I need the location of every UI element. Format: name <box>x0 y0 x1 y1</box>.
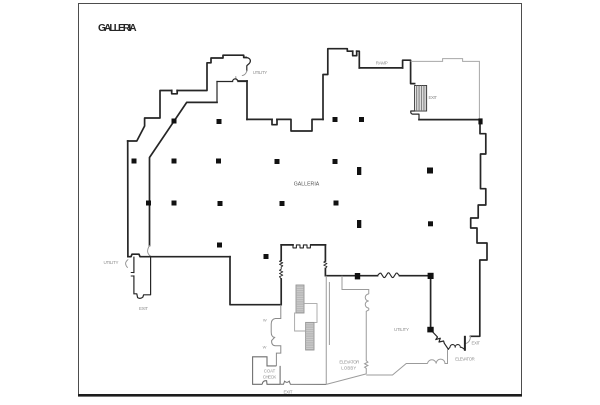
svg-text:W: W <box>263 317 267 322</box>
svg-text:COAT: COAT <box>264 368 276 373</box>
svg-text:EXIT: EXIT <box>139 306 148 311</box>
svg-text:GALLERIA: GALLERIA <box>294 182 320 188</box>
svg-text:UTILITY: UTILITY <box>104 260 119 265</box>
svg-text:EXIT: EXIT <box>472 341 481 346</box>
svg-text:UTILITY: UTILITY <box>253 70 267 75</box>
svg-text:ELEVATOR: ELEVATOR <box>455 356 475 361</box>
svg-text:LOBBY: LOBBY <box>341 366 356 371</box>
svg-text:W: W <box>263 344 267 349</box>
svg-text:EXIT: EXIT <box>284 390 293 395</box>
svg-text:CHECK: CHECK <box>263 375 277 380</box>
svg-text:RAMP: RAMP <box>376 61 388 66</box>
svg-text:GALLERIA: GALLERIA <box>98 23 137 34</box>
svg-text:UTILITY: UTILITY <box>394 327 409 332</box>
svg-text:EXIT: EXIT <box>429 95 438 100</box>
svg-text:ELEVATOR: ELEVATOR <box>339 359 359 364</box>
